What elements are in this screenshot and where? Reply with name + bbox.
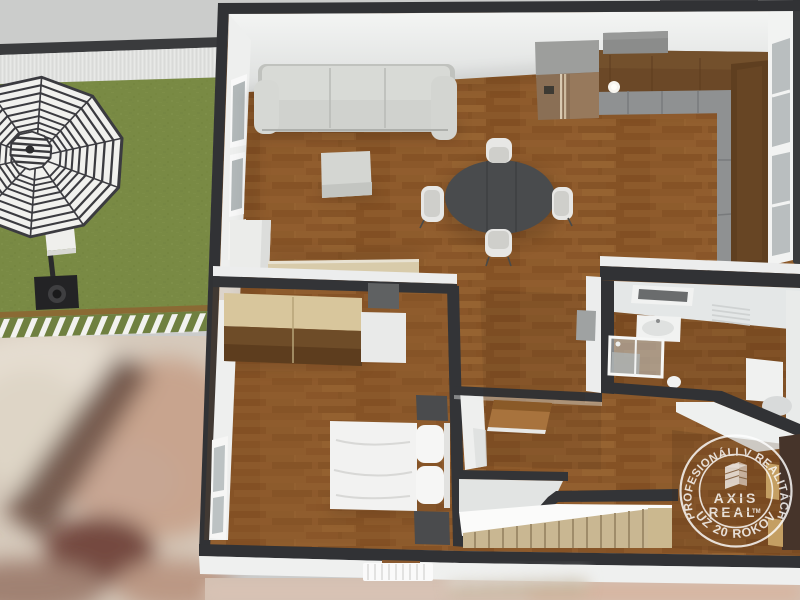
svg-text:REAL: REAL [709, 505, 758, 520]
svg-text:TM: TM [752, 509, 761, 515]
